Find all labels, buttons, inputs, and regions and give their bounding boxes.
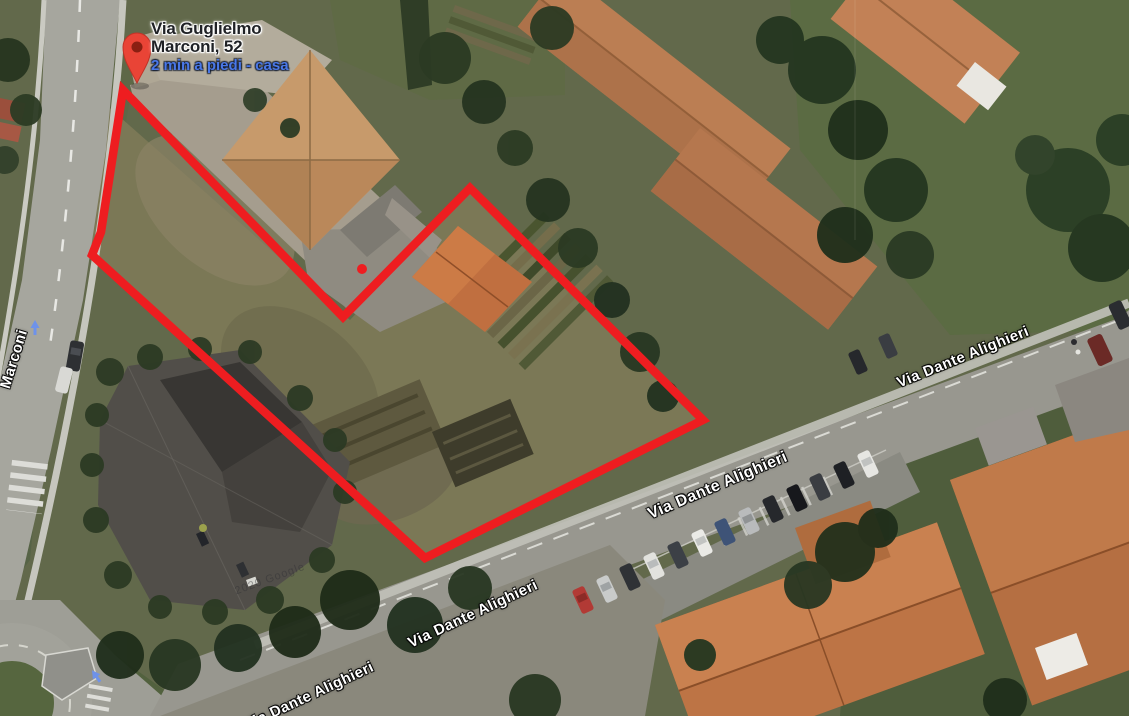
property-marker-dot — [357, 264, 367, 274]
location-pin-icon[interactable] — [123, 33, 151, 90]
marker-address-label[interactable]: Via Guglielmo Marconi, 52 2 min a piedi … — [151, 20, 289, 75]
address-line2: Marconi, 52 — [151, 38, 289, 56]
satellite-map[interactable]: Via Guglielmo Marconi, 52 2 min a piedi … — [0, 0, 1129, 716]
address-line1: Via Guglielmo — [151, 20, 289, 38]
property-boundary-polygon — [92, 90, 703, 558]
walking-time-link[interactable]: 2 min a piedi - casa — [151, 57, 289, 75]
